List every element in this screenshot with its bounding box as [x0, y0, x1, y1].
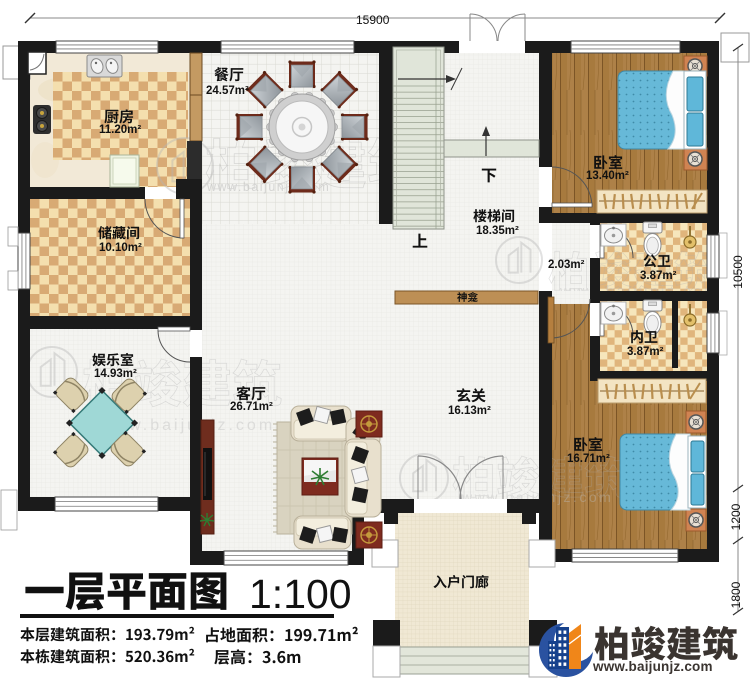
svg-text:18.35m²: 18.35m²: [476, 225, 519, 237]
svg-text:10500: 10500: [731, 255, 745, 289]
svg-text:15900: 15900: [356, 13, 390, 27]
svg-text:10.10m²: 10.10m²: [99, 242, 142, 254]
svg-text:13.40m²: 13.40m²: [586, 170, 629, 182]
svg-text:2.03m²: 2.03m²: [548, 259, 585, 271]
svg-text:3.87m²: 3.87m²: [627, 346, 664, 358]
svg-text:11.20m²: 11.20m²: [99, 124, 141, 136]
svg-text:14.93m²: 14.93m²: [94, 368, 137, 380]
svg-text:26.71m²: 26.71m²: [230, 401, 273, 413]
svg-text:16.71m²: 16.71m²: [567, 453, 610, 465]
svg-text:1:100: 1:100: [249, 571, 352, 617]
svg-text:16.13m²: 16.13m²: [448, 405, 491, 417]
svg-text:1800: 1800: [729, 581, 743, 608]
svg-text:www.baijunjz.com: www.baijunjz.com: [592, 659, 713, 674]
svg-text:24.57m²: 24.57m²: [206, 85, 249, 97]
svg-text:1200: 1200: [729, 503, 743, 530]
svg-text:3.87m²: 3.87m²: [640, 270, 677, 282]
